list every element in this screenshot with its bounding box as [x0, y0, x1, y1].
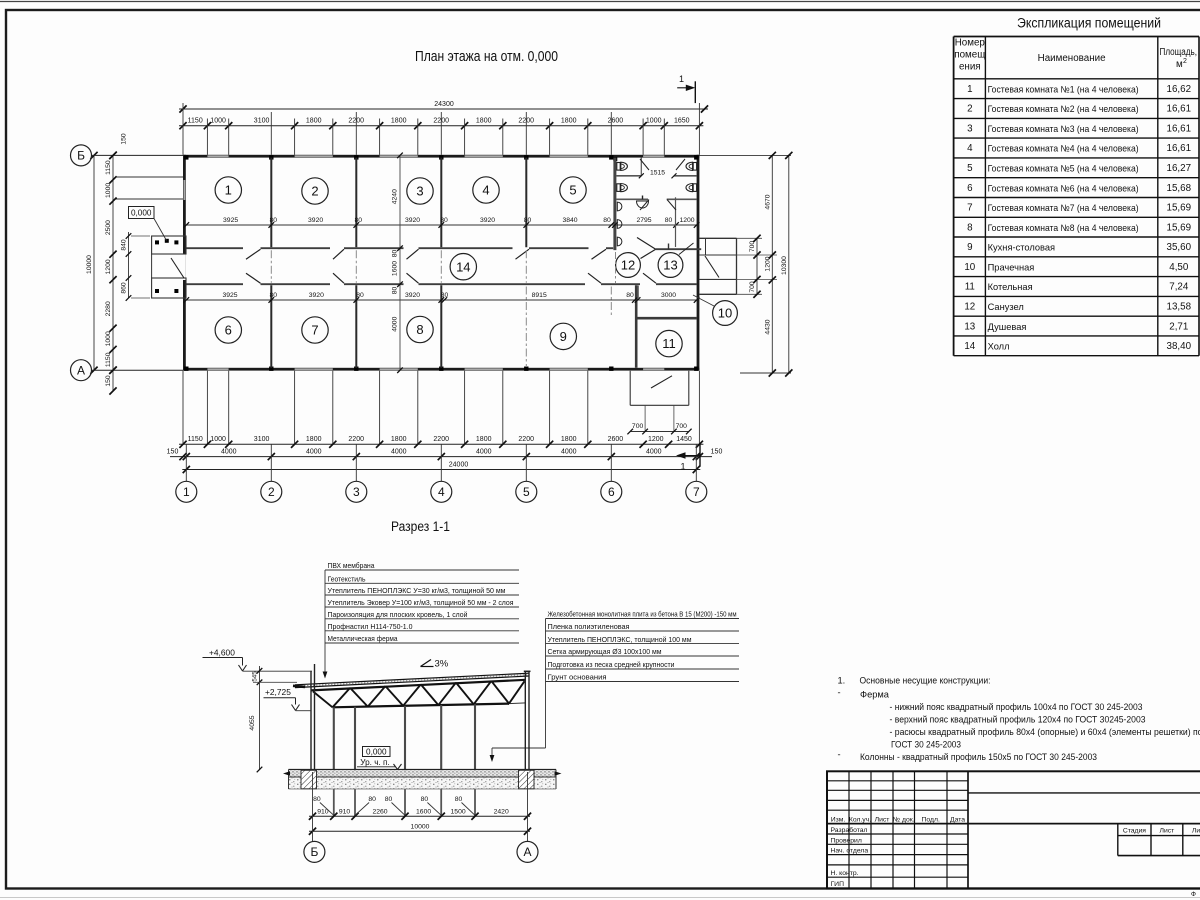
svg-text:Разработал: Разработал	[831, 826, 868, 834]
svg-text:Котельная: Котельная	[988, 282, 1033, 292]
svg-text:4000: 4000	[561, 449, 577, 456]
svg-text:Ферма: Ферма	[860, 690, 890, 700]
svg-text:Лист: Лист	[875, 816, 890, 823]
svg-text:План этажа на отм. 0,000: План этажа на отм. 0,000	[415, 49, 558, 65]
svg-text:Нач. отдела: Нач. отдела	[831, 848, 869, 855]
svg-text:4000: 4000	[391, 449, 407, 456]
svg-text:Подготовка из песка средней кр: Подготовка из песка средней крупности	[548, 660, 675, 669]
svg-text:Холл: Холл	[988, 342, 1010, 352]
svg-text:Гостевая комната №3 (на 4 чело: Гостевая комната №3 (на 4 человека)	[988, 124, 1139, 134]
svg-text:1600: 1600	[416, 808, 431, 815]
svg-text:5: 5	[569, 183, 576, 198]
svg-text:16,61: 16,61	[1167, 104, 1192, 115]
svg-text:0,000: 0,000	[366, 747, 387, 756]
svg-text:2200: 2200	[348, 436, 364, 443]
svg-text:Изм.: Изм.	[831, 816, 846, 823]
svg-text:1200: 1200	[765, 256, 772, 271]
svg-text:700: 700	[632, 423, 644, 430]
svg-text:1800: 1800	[306, 436, 322, 443]
svg-text:80: 80	[524, 217, 532, 224]
svg-text:- расюсы квадратный профиль 80: - расюсы квадратный профиль 80х4 (опорны…	[890, 727, 1200, 737]
svg-text:1800: 1800	[391, 436, 407, 443]
svg-text:6: 6	[225, 323, 232, 338]
svg-text:Пленка полиэтиленовая: Пленка полиэтиленовая	[548, 622, 630, 631]
svg-text:13: 13	[663, 258, 677, 273]
svg-text:4000: 4000	[646, 449, 662, 456]
svg-text:16,62: 16,62	[1167, 84, 1192, 95]
svg-text:4430: 4430	[765, 319, 772, 334]
svg-text:Геотекстиль: Геотекстиль	[328, 575, 366, 584]
svg-text:80: 80	[665, 217, 673, 224]
svg-text:80: 80	[455, 796, 463, 803]
svg-text:А: А	[77, 364, 85, 378]
svg-text:80: 80	[392, 250, 399, 258]
svg-text:1150: 1150	[188, 118, 203, 125]
svg-text:14: 14	[964, 341, 975, 352]
svg-text:6: 6	[967, 183, 973, 194]
svg-text:3: 3	[416, 184, 423, 199]
svg-text:2200: 2200	[433, 436, 449, 443]
svg-text:3920: 3920	[405, 292, 420, 299]
svg-text:1800: 1800	[476, 118, 492, 125]
svg-text:1.: 1.	[838, 675, 846, 685]
svg-text:150: 150	[121, 133, 128, 145]
svg-text:700: 700	[749, 281, 756, 293]
svg-text:Гостевая комната №8 (на 4 чело: Гостевая комната №8 (на 4 человека)	[988, 223, 1139, 233]
svg-text:80: 80	[385, 796, 393, 803]
svg-text:80: 80	[626, 292, 634, 299]
svg-text:2260: 2260	[372, 808, 387, 815]
svg-text:Ур. ч. п.: Ур. ч. п.	[360, 758, 389, 767]
svg-text:1000: 1000	[105, 183, 112, 198]
svg-text:3840: 3840	[562, 217, 577, 224]
svg-text:3: 3	[967, 124, 973, 135]
svg-text:Гостевая комната №2 (на 4 чело: Гостевая комната №2 (на 4 человека)	[988, 104, 1139, 114]
svg-text:2795: 2795	[636, 217, 651, 224]
svg-text:помещ: помещ	[954, 50, 985, 61]
svg-text:Подл.: Подл.	[922, 816, 940, 823]
svg-text:Сетка армирующая Ø3 100х100 мм: Сетка армирующая Ø3 100х100 мм	[548, 647, 662, 656]
svg-text:2,71: 2,71	[1169, 321, 1188, 332]
svg-text:1800: 1800	[476, 436, 492, 443]
svg-text:Утеплитель Эковер У=100 кг/м3,: Утеплитель Эковер У=100 кг/м3, толщиной …	[328, 598, 514, 607]
svg-text:Гостевая комната №5 (на 4 чело: Гостевая комната №5 (на 4 человека)	[988, 164, 1139, 174]
svg-text:11: 11	[662, 336, 676, 351]
svg-text:Стадия: Стадия	[1123, 828, 1146, 835]
svg-text:Б: Б	[310, 845, 318, 859]
svg-text:Утеплитель ПЕНОПЛЭКС, толщиной: Утеплитель ПЕНОПЛЭКС, толщиной 100 мм	[548, 635, 692, 644]
svg-text:1515: 1515	[650, 170, 665, 177]
svg-text:- нижний пояс квадратный профи: - нижний пояс квадратный профиль 100х4 п…	[890, 702, 1143, 712]
svg-text:Железобетонная монолитная плит: Железобетонная монолитная плита из бетон…	[548, 610, 737, 619]
svg-text:Санузел: Санузел	[988, 302, 1024, 312]
svg-text:9: 9	[967, 242, 972, 253]
svg-text:1450: 1450	[676, 436, 692, 443]
svg-text:4055: 4055	[249, 715, 256, 730]
svg-text:3%: 3%	[435, 658, 449, 669]
svg-text:3925: 3925	[223, 217, 238, 224]
svg-text:А: А	[523, 845, 531, 859]
svg-text:1650: 1650	[674, 118, 690, 125]
svg-text:+2,725: +2,725	[265, 687, 291, 697]
svg-text:4: 4	[482, 183, 489, 198]
svg-text:840: 840	[121, 239, 128, 251]
svg-text:1600: 1600	[392, 261, 399, 276]
svg-text:-: -	[838, 688, 841, 698]
svg-text:16,61: 16,61	[1167, 143, 1192, 154]
svg-text:910: 910	[339, 808, 351, 815]
svg-text:Площадь,: Площадь,	[1160, 47, 1198, 58]
svg-text:10000: 10000	[86, 255, 93, 274]
svg-text:1150: 1150	[105, 160, 112, 175]
svg-text:Наименование: Наименование	[1038, 53, 1106, 64]
svg-text:1200: 1200	[105, 259, 112, 274]
svg-text:4240: 4240	[392, 189, 399, 204]
svg-text:5: 5	[523, 485, 530, 499]
svg-text:16,27: 16,27	[1167, 163, 1192, 174]
svg-text:1800: 1800	[561, 436, 577, 443]
svg-text:Душевая: Душевая	[988, 322, 1027, 332]
svg-text:6: 6	[608, 485, 615, 499]
svg-text:80: 80	[313, 796, 321, 803]
svg-text:Гостевая комната №6 (на 4 чело: Гостевая комната №6 (на 4 человека)	[988, 183, 1139, 193]
svg-text:12: 12	[964, 302, 975, 313]
svg-text:7: 7	[967, 203, 972, 214]
svg-text:10: 10	[718, 306, 732, 321]
svg-text:80: 80	[421, 796, 429, 803]
svg-text:Грунт основания: Грунт основания	[548, 673, 607, 682]
svg-text:8: 8	[416, 322, 423, 337]
svg-text:1: 1	[967, 84, 972, 95]
svg-text:Основные несущие конструкции:: Основные несущие конструкции:	[860, 675, 991, 685]
svg-text:10300: 10300	[781, 256, 788, 275]
svg-text:Б: Б	[77, 149, 85, 163]
svg-text:Гостевая комната №7 (на 4 чело: Гостевая комната №7 (на 4 человека)	[988, 203, 1139, 213]
svg-text:10000: 10000	[411, 823, 430, 830]
svg-text:ГИП: ГИП	[831, 881, 845, 888]
svg-text:38,40: 38,40	[1167, 341, 1192, 352]
svg-text:1200: 1200	[679, 217, 694, 224]
svg-text:7,24: 7,24	[1169, 282, 1189, 293]
svg-text:Гостевая комната №1 (на 4 чело: Гостевая комната №1 (на 4 человека)	[988, 84, 1139, 94]
svg-text:3100: 3100	[254, 436, 270, 443]
svg-text:Н. контр.: Н. контр.	[831, 870, 859, 877]
svg-text:Номер: Номер	[955, 38, 986, 49]
svg-text:16,61: 16,61	[1167, 124, 1192, 135]
svg-text:1: 1	[680, 462, 685, 472]
svg-text:15,69: 15,69	[1167, 222, 1192, 233]
svg-text:3920: 3920	[309, 292, 324, 299]
svg-text:2500: 2500	[105, 220, 112, 235]
svg-text:+4,600: +4,600	[209, 647, 235, 657]
svg-text:9: 9	[560, 329, 567, 344]
svg-text:3925: 3925	[222, 292, 237, 299]
svg-text:3: 3	[353, 485, 360, 499]
svg-text:- верхний пояс квадратный проф: - верхний пояс квадратный профиль 120х4 …	[890, 715, 1146, 725]
svg-text:1: 1	[679, 74, 684, 84]
svg-text:1150: 1150	[188, 436, 203, 443]
svg-text:1000: 1000	[646, 118, 662, 125]
svg-text:м: м	[1176, 59, 1183, 70]
svg-text:1800: 1800	[561, 118, 577, 125]
svg-text:№ док.: № док.	[893, 816, 915, 823]
svg-text:2: 2	[967, 104, 972, 115]
svg-text:4670: 4670	[765, 194, 772, 209]
svg-text:1150: 1150	[105, 352, 112, 367]
svg-text:4: 4	[438, 485, 445, 499]
svg-text:5: 5	[967, 163, 973, 174]
svg-text:Кухня-столовая: Кухня-столовая	[988, 243, 1055, 253]
svg-text:10: 10	[964, 262, 975, 273]
svg-text:1800: 1800	[391, 118, 407, 125]
svg-text:Ли: Ли	[1192, 828, 1200, 835]
svg-text:860: 860	[121, 282, 128, 294]
svg-text:3920: 3920	[480, 217, 495, 224]
svg-text:3000: 3000	[661, 292, 676, 299]
svg-text:1000: 1000	[210, 436, 226, 443]
svg-text:Разрез 1-1: Разрез 1-1	[391, 519, 450, 534]
svg-text:13: 13	[964, 321, 975, 332]
svg-text:2200: 2200	[518, 436, 534, 443]
svg-text:4: 4	[967, 143, 973, 154]
svg-text:80: 80	[356, 292, 364, 299]
svg-text:4000: 4000	[476, 449, 492, 456]
svg-text:Ф: Ф	[1191, 891, 1196, 898]
svg-text:2: 2	[268, 485, 275, 499]
svg-text:24300: 24300	[434, 101, 454, 108]
svg-text:Прачечная: Прачечная	[988, 262, 1035, 272]
svg-text:24000: 24000	[449, 461, 469, 468]
svg-text:15,69: 15,69	[1167, 203, 1192, 214]
svg-text:7: 7	[693, 485, 700, 499]
svg-text:Колонны - квадратный профиль 1: Колонны - квадратный профиль 150х5 по ГО…	[860, 752, 1097, 762]
svg-text:150: 150	[167, 449, 179, 456]
svg-text:ения: ения	[959, 62, 981, 73]
svg-text:1200: 1200	[648, 436, 664, 443]
svg-text:ГОСТ 30 245-2003: ГОСТ 30 245-2003	[891, 739, 961, 749]
svg-text:80: 80	[392, 287, 399, 295]
svg-text:8: 8	[967, 222, 973, 233]
svg-text:2280: 2280	[105, 301, 112, 316]
svg-text:545: 545	[251, 671, 258, 682]
svg-text:4000: 4000	[306, 449, 322, 456]
svg-text:1000: 1000	[210, 118, 226, 125]
svg-text:2600: 2600	[608, 118, 624, 125]
svg-text:Гостевая комната №4 (на 4 чело: Гостевая комната №4 (на 4 человека)	[988, 144, 1139, 154]
svg-text:3100: 3100	[254, 118, 270, 125]
svg-text:35,60: 35,60	[1167, 242, 1192, 253]
svg-text:Утеплитель ПЕНОПЛЭКС У=30 кг/м: Утеплитель ПЕНОПЛЭКС У=30 кг/м3, толщино…	[328, 586, 506, 595]
svg-text:8915: 8915	[532, 292, 547, 299]
svg-text:15,68: 15,68	[1167, 183, 1192, 194]
svg-text:4000: 4000	[392, 316, 399, 331]
svg-text:11: 11	[965, 282, 975, 293]
svg-text:7: 7	[311, 323, 318, 338]
svg-text:700: 700	[676, 423, 688, 430]
svg-text:2420: 2420	[494, 808, 509, 815]
svg-text:0,000: 0,000	[131, 209, 152, 218]
svg-text:Экспликация помещений: Экспликация помещений	[1017, 16, 1161, 32]
svg-text:Металлическая ферма: Металлическая ферма	[328, 634, 398, 643]
svg-text:80: 80	[368, 796, 376, 803]
svg-text:1800: 1800	[306, 118, 322, 125]
svg-text:700: 700	[749, 241, 756, 253]
svg-text:2: 2	[311, 184, 318, 199]
svg-text:Проверил: Проверил	[831, 837, 862, 844]
svg-text:3920: 3920	[308, 217, 323, 224]
svg-text:1: 1	[225, 183, 232, 198]
svg-text:Кол.уч.: Кол.уч.	[849, 816, 871, 823]
svg-text:2: 2	[1183, 58, 1187, 65]
svg-text:2600: 2600	[608, 436, 624, 443]
svg-text:12: 12	[621, 258, 635, 273]
svg-text:Лист: Лист	[1160, 828, 1175, 835]
svg-text:4000: 4000	[221, 449, 237, 456]
svg-text:1000: 1000	[105, 331, 112, 346]
svg-text:Дата: Дата	[950, 816, 965, 823]
svg-text:150: 150	[711, 449, 723, 456]
svg-text:Пароизоляция для плоских крове: Пароизоляция для плоских кровель, 1 слой	[328, 610, 468, 619]
svg-text:150: 150	[105, 375, 112, 387]
svg-text:80: 80	[603, 217, 611, 224]
svg-text:Профнастил Н114-750-1.0: Профнастил Н114-750-1.0	[328, 622, 413, 631]
svg-text:ПВХ мембрана: ПВХ мембрана	[328, 561, 375, 570]
svg-text:1: 1	[183, 485, 190, 499]
svg-text:13,58: 13,58	[1167, 302, 1192, 313]
svg-text:3920: 3920	[405, 217, 420, 224]
svg-text:4,50: 4,50	[1169, 262, 1189, 273]
svg-text:1500: 1500	[451, 808, 466, 815]
svg-text:14: 14	[456, 259, 470, 274]
svg-text:-: -	[838, 750, 841, 760]
